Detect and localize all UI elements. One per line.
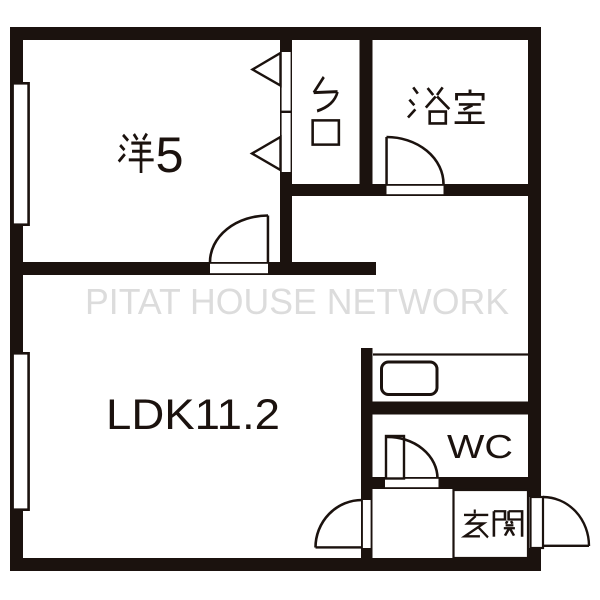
- svg-text:5: 5: [156, 126, 184, 183]
- svg-text:WC: WC: [447, 428, 513, 465]
- svg-text:LDK11.2: LDK11.2: [106, 391, 280, 439]
- svg-text:PITAT HOUSE NETWORK: PITAT HOUSE NETWORK: [85, 281, 509, 322]
